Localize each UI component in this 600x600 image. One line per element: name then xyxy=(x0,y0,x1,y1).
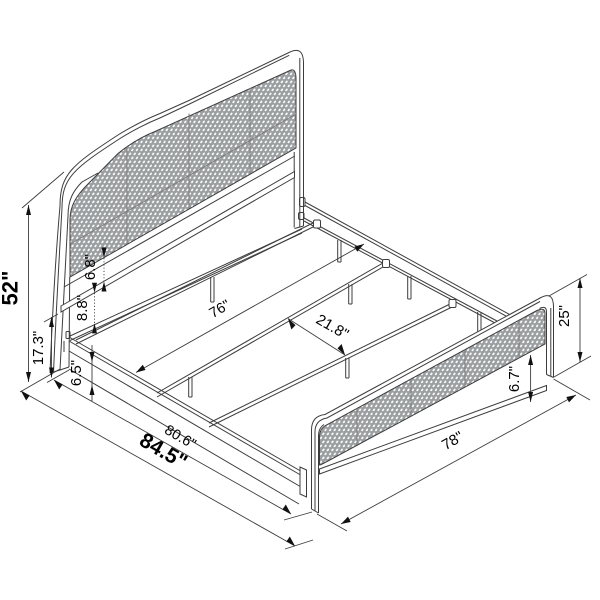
svg-text:6.5": 6.5" xyxy=(68,360,85,386)
svg-text:17.3": 17.3" xyxy=(30,331,47,366)
svg-text:6.8": 6.8" xyxy=(82,254,99,280)
svg-text:25": 25" xyxy=(556,305,573,327)
svg-text:6.7": 6.7" xyxy=(506,366,523,392)
svg-text:8.8": 8.8" xyxy=(74,295,91,321)
svg-text:52": 52" xyxy=(0,271,23,306)
